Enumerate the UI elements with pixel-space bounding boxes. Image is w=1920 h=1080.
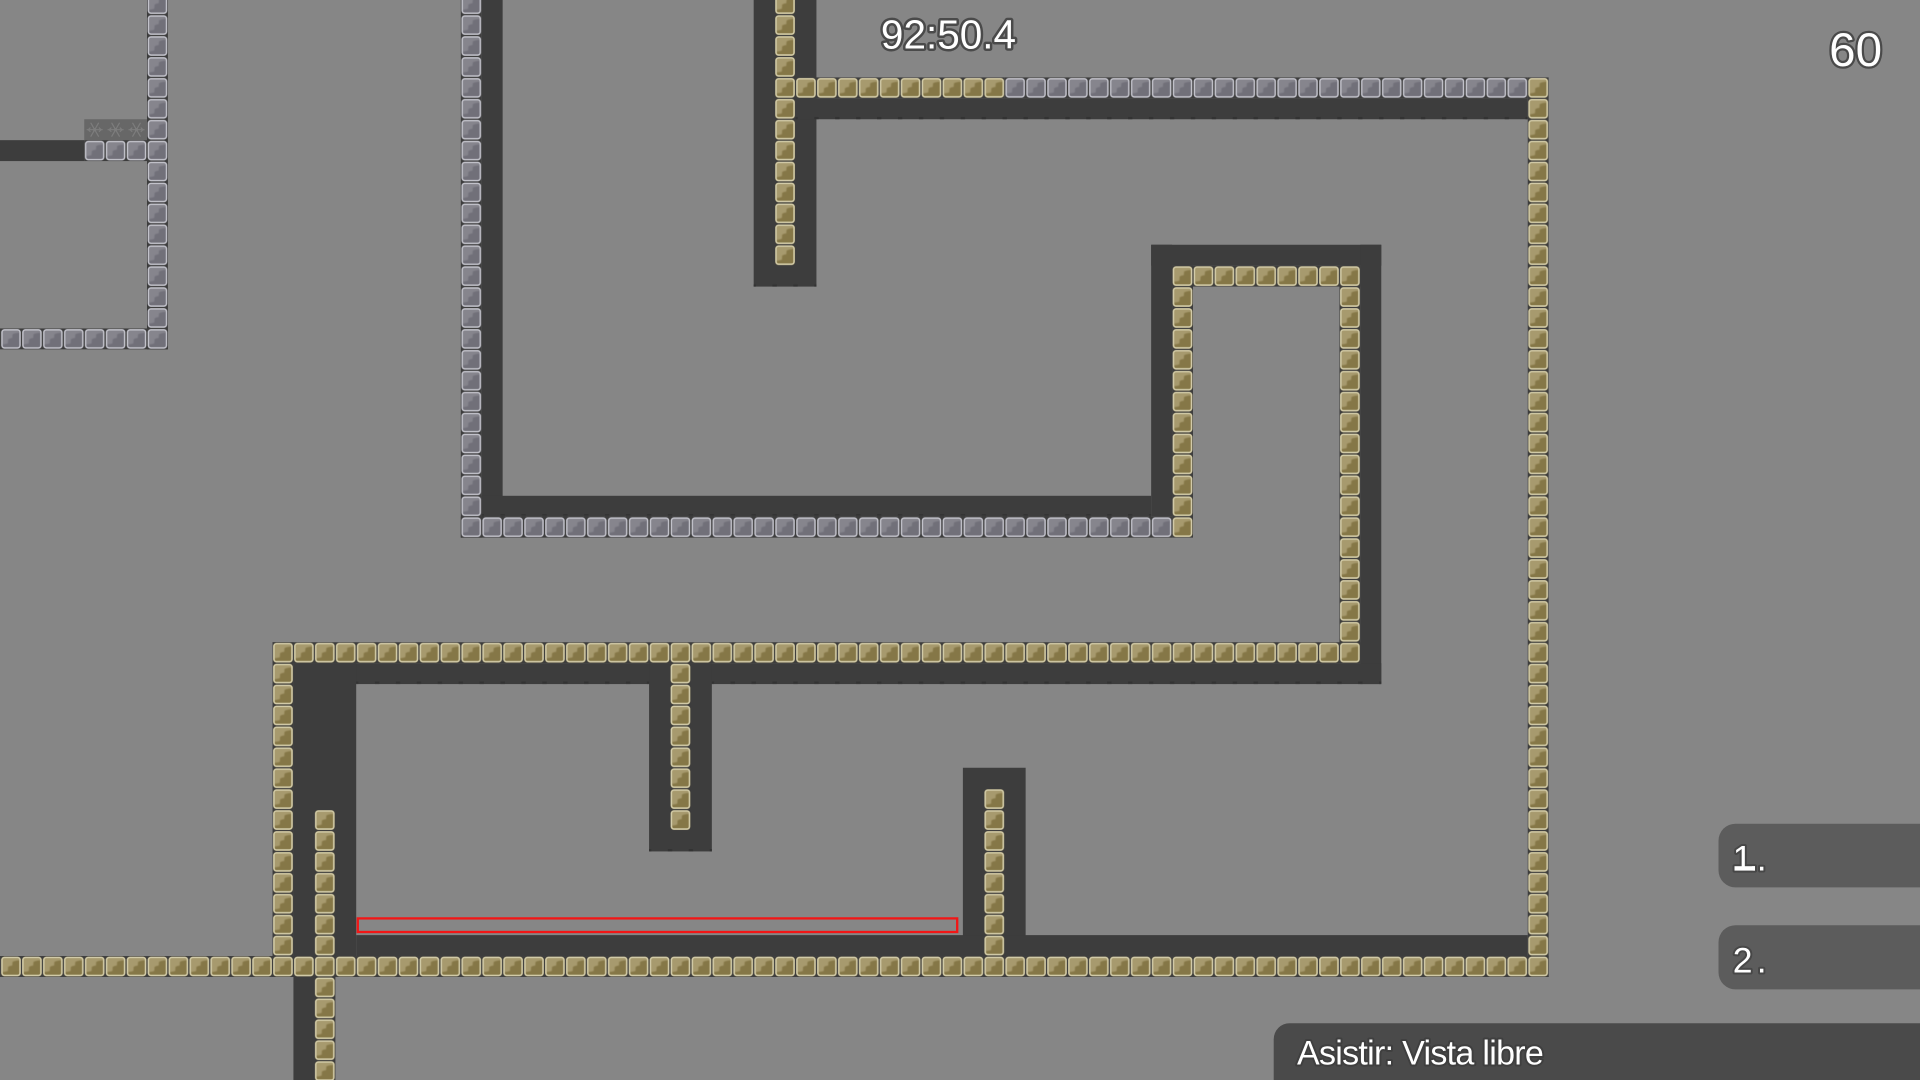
svg-text:.: . [1757,940,1767,980]
svg-text:1: 1 [1733,838,1753,878]
svg-text:60: 60 [1829,24,1882,77]
svg-text:2: 2 [1733,940,1753,980]
svg-text:92:50.4: 92:50.4 [881,12,1016,58]
svg-text:Asistir: Vista libre: Asistir: Vista libre [1297,1035,1543,1073]
svg-text:.: . [1757,838,1767,878]
